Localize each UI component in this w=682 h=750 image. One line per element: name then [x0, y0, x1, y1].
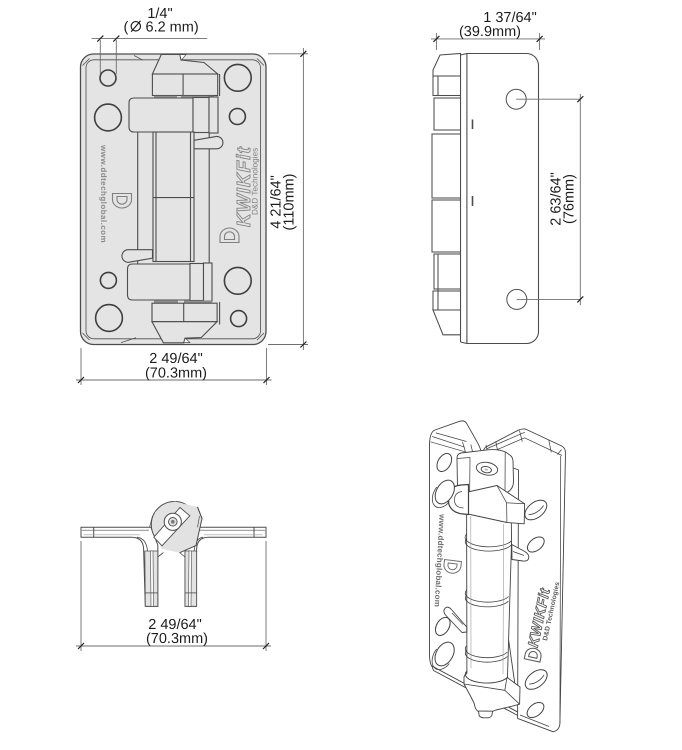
- svg-text:(39.9mm): (39.9mm): [459, 24, 521, 40]
- svg-text:(70.3mm): (70.3mm): [146, 631, 208, 647]
- svg-text:www.ddtechglobal.com: www.ddtechglobal.com: [99, 144, 108, 243]
- svg-text:D&D Technologies: D&D Technologies: [251, 148, 260, 215]
- svg-text:(70.3mm): (70.3mm): [145, 366, 207, 382]
- svg-text:6.2 mm): 6.2 mm): [146, 20, 199, 36]
- svg-text:(76mm): (76mm): [562, 174, 578, 224]
- svg-text:(110mm): (110mm): [282, 174, 298, 231]
- svg-text:(: (: [124, 20, 129, 36]
